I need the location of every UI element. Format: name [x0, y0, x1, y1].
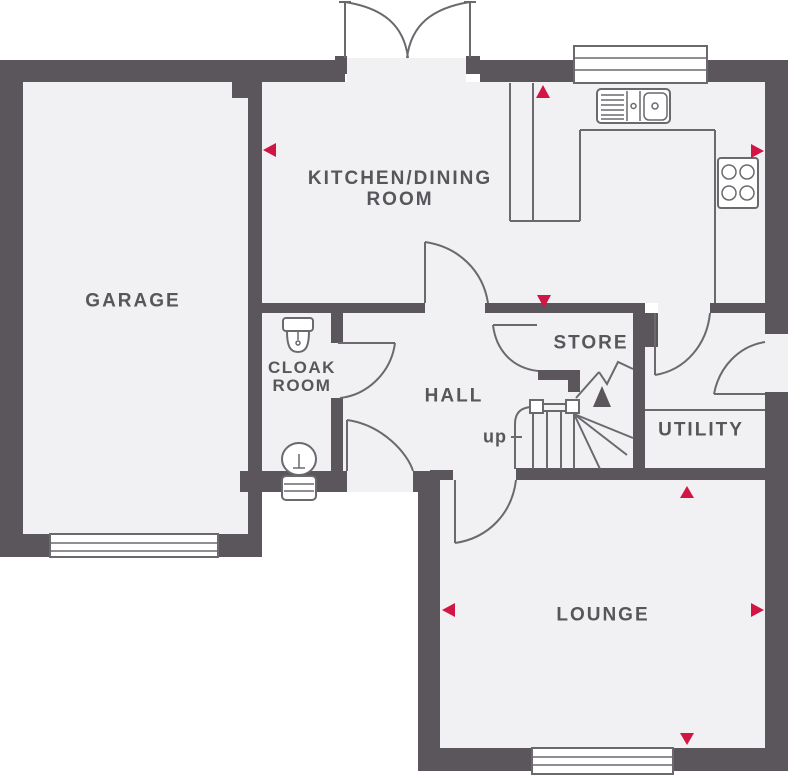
stair-wall	[633, 313, 645, 468]
french-doors	[339, 2, 476, 58]
kitchen-sink-icon	[597, 89, 670, 123]
door-jamb	[335, 56, 347, 74]
room-label-utility: UTILITY	[658, 420, 744, 441]
room-label-kitchen-dining: KITCHEN/DINING ROOM	[308, 168, 492, 210]
cloak-label-line2: ROOM	[268, 377, 336, 395]
floor-plan-drawing	[0, 0, 791, 777]
hob-icon	[718, 158, 758, 208]
newel-post	[566, 400, 579, 413]
floor-areas	[23, 58, 788, 748]
garage-partition-wall	[248, 98, 262, 534]
kitchen-hall-gap	[425, 303, 485, 313]
door-jamb	[466, 56, 480, 74]
room-label-store: STORE	[553, 333, 628, 354]
lounge-door-gap	[453, 470, 516, 480]
cloak-label-line1: CLOAK	[268, 359, 336, 377]
kitchen-window	[574, 46, 707, 83]
stairs-up-label: up	[483, 427, 507, 448]
front-door-gap	[347, 471, 413, 492]
room-label-cloakroom: CLOAK ROOM	[268, 359, 336, 395]
newel-post	[530, 400, 543, 413]
kitchen-label-line1: KITCHEN/DINING	[308, 168, 492, 189]
wc-toilet-icon	[282, 443, 316, 500]
kitchen-utility-gap	[658, 303, 710, 313]
french-door-gap	[347, 58, 466, 84]
garage-door	[50, 534, 218, 557]
floor-plan: GARAGE KITCHEN/DINING ROOM CLOAK ROOM HA…	[0, 0, 791, 777]
lounge-window	[532, 748, 673, 774]
side-door-gap	[765, 334, 788, 392]
room-label-garage: GARAGE	[85, 291, 180, 312]
room-label-lounge: LOUNGE	[556, 605, 649, 626]
room-label-hall: HALL	[425, 386, 484, 407]
kitchen-label-line2: ROOM	[308, 189, 492, 210]
